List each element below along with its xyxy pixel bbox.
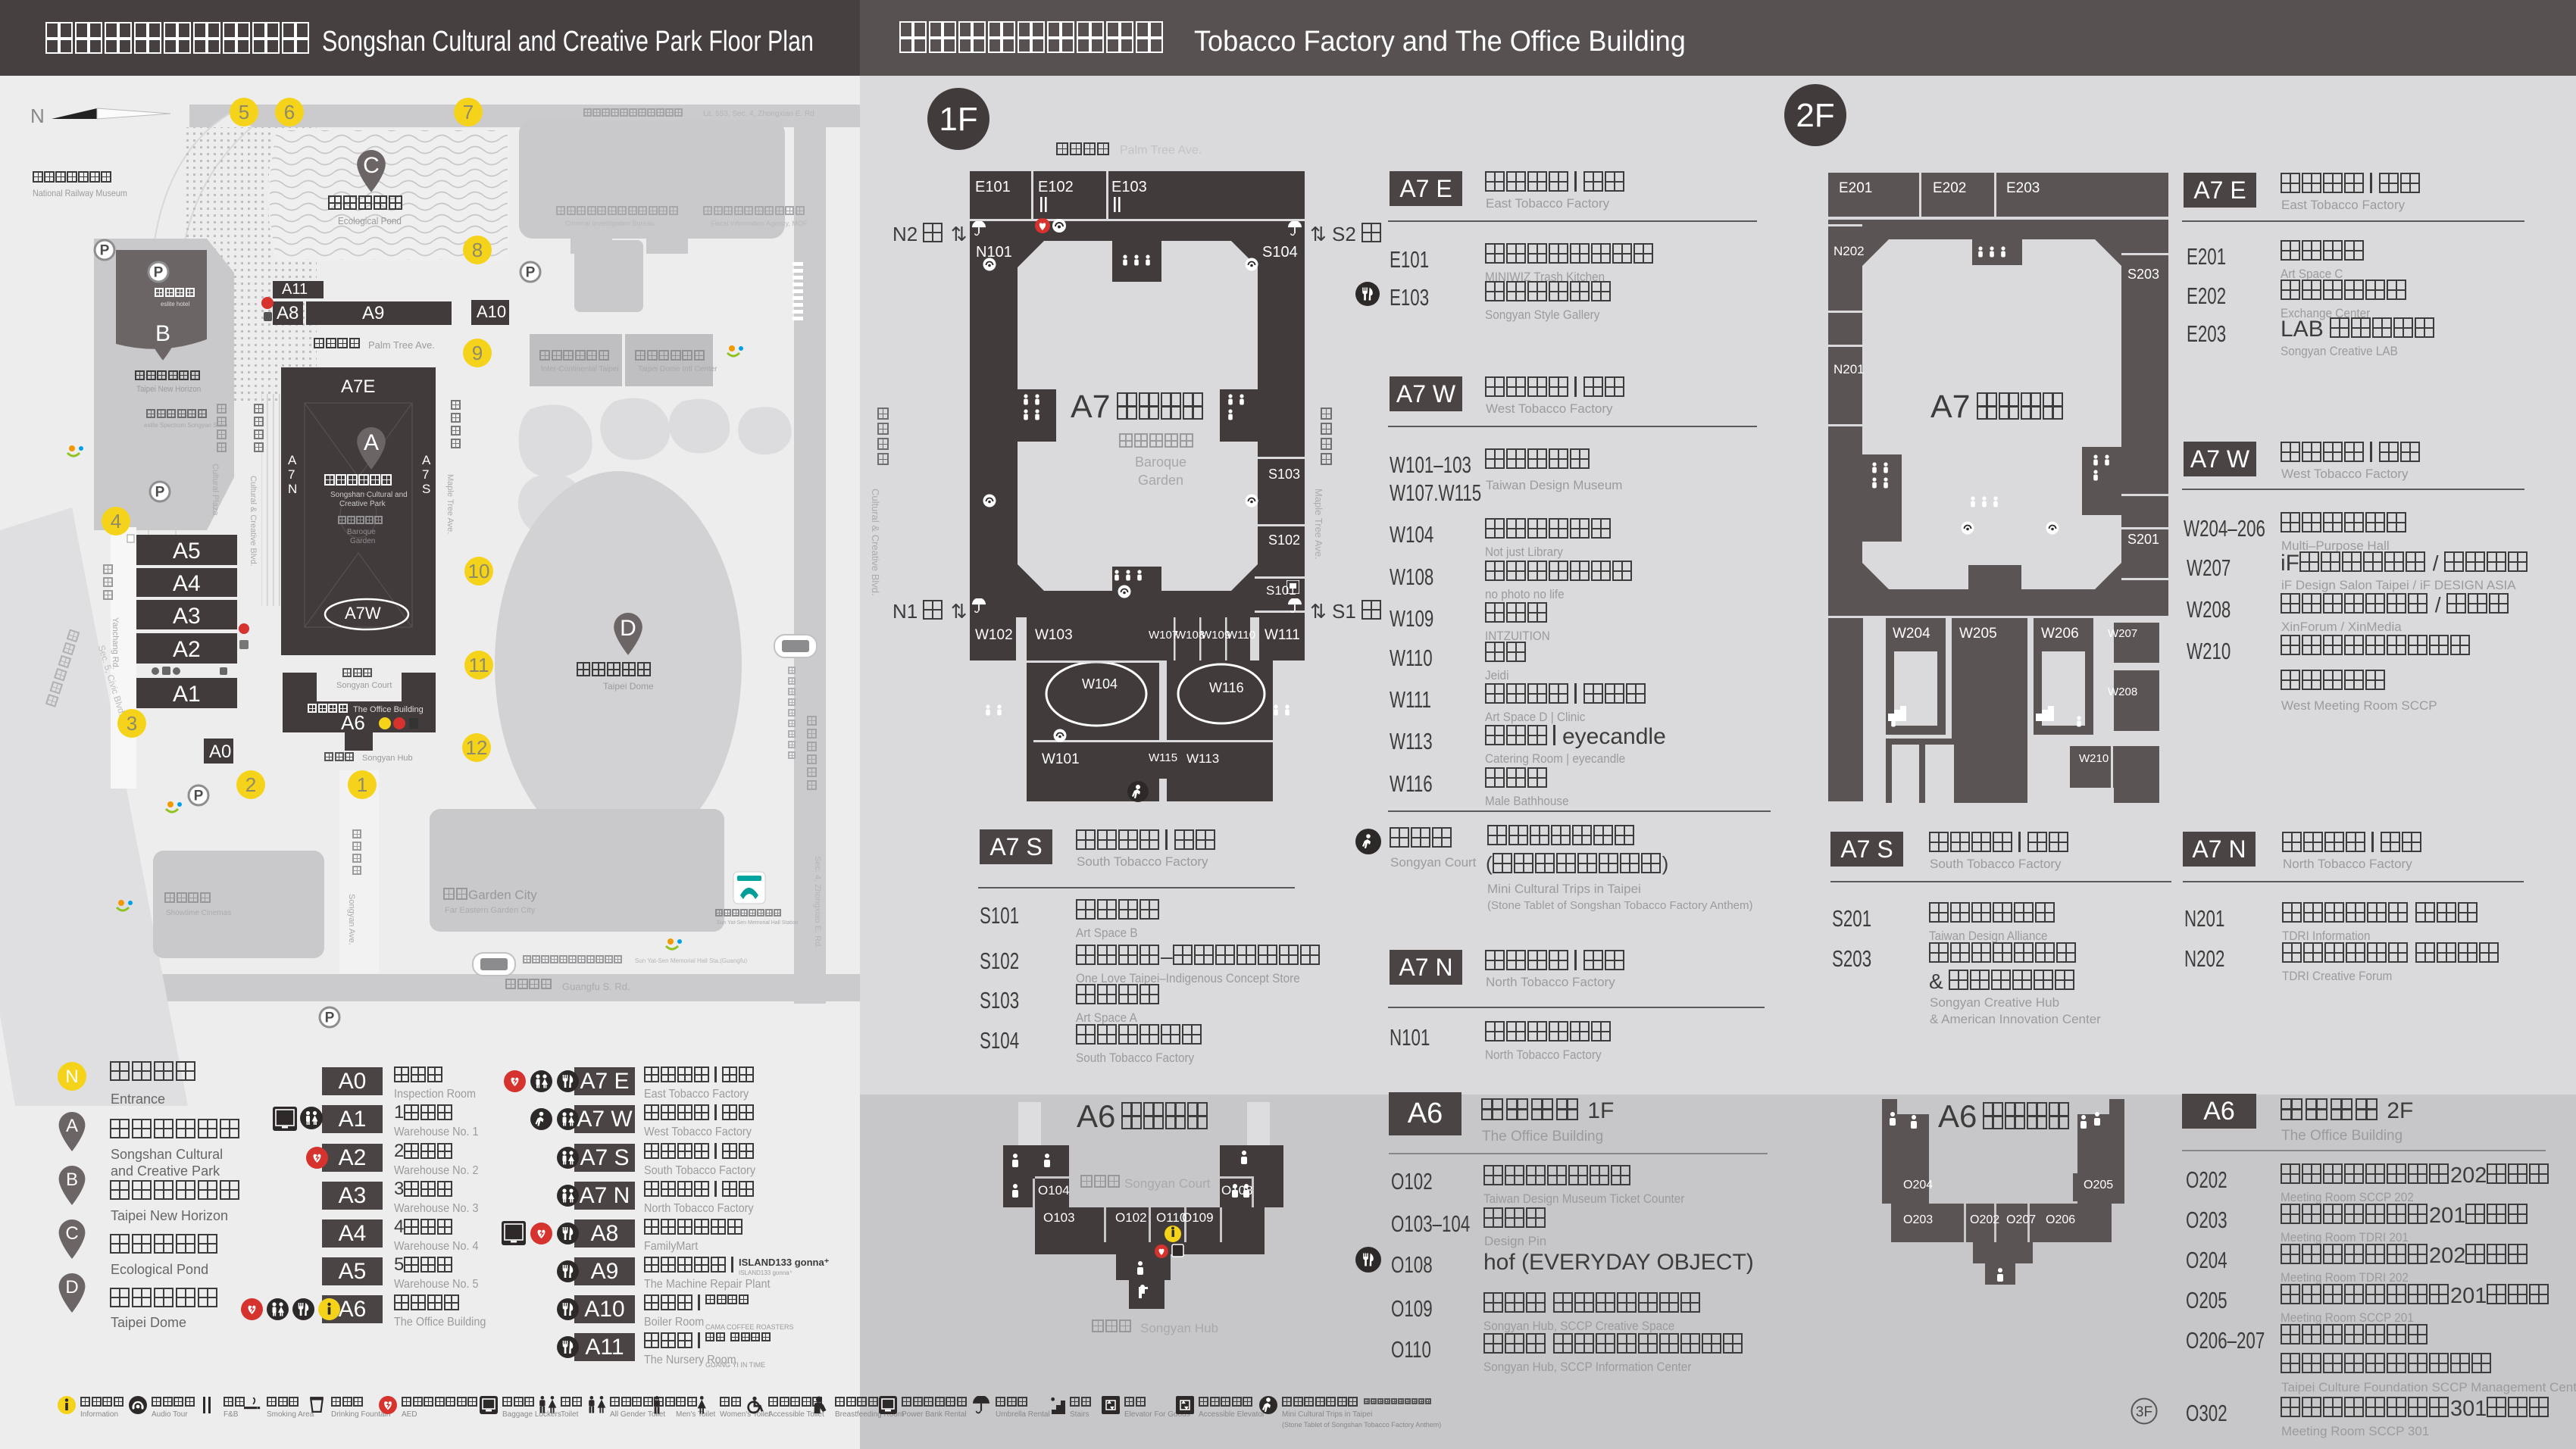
svg-text:D: D	[65, 1277, 78, 1298]
svg-text:1: 1	[357, 773, 367, 796]
svg-text:9: 9	[472, 342, 483, 364]
svg-text:12: 12	[466, 736, 488, 759]
svg-text:C: C	[363, 153, 380, 178]
svg-text:2: 2	[245, 773, 256, 796]
svg-text:5: 5	[239, 101, 249, 123]
svg-text:8: 8	[472, 239, 483, 261]
svg-text:7: 7	[463, 101, 474, 123]
svg-text:D: D	[620, 616, 636, 641]
svg-text:N: N	[65, 1066, 78, 1087]
svg-text:B: B	[155, 321, 170, 346]
svg-text:11: 11	[469, 654, 489, 676]
svg-text:10: 10	[468, 560, 490, 582]
svg-text:6: 6	[284, 101, 295, 123]
svg-text:4: 4	[111, 510, 121, 532]
svg-text:2F: 2F	[1796, 97, 1834, 134]
svg-text:1F: 1F	[939, 101, 977, 138]
svg-text:3: 3	[127, 712, 137, 735]
svg-text:3F: 3F	[2136, 1404, 2152, 1420]
svg-text:A: A	[364, 430, 379, 455]
svg-text:C: C	[65, 1223, 78, 1244]
svg-text:A: A	[66, 1116, 78, 1136]
svg-text:B: B	[66, 1170, 78, 1190]
